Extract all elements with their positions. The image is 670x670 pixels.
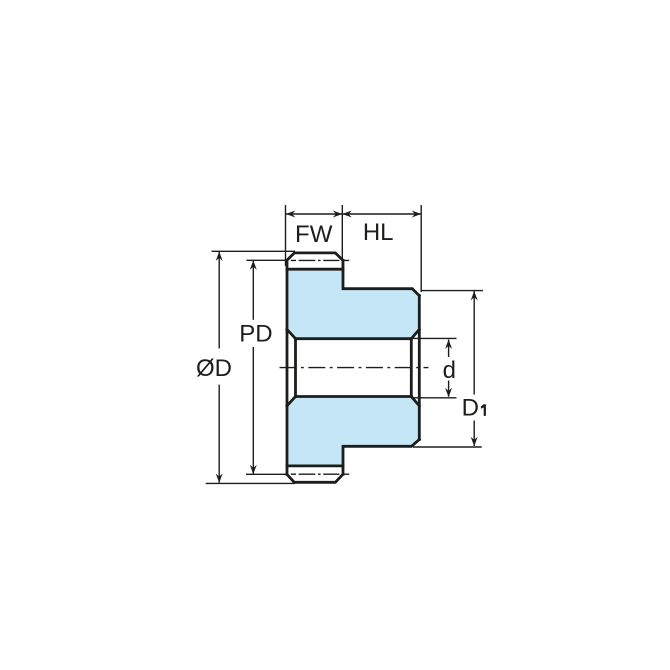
svg-text:d: d bbox=[443, 357, 456, 384]
svg-text:FW: FW bbox=[295, 221, 333, 248]
svg-text:ØD: ØD bbox=[196, 355, 232, 382]
svg-text:PD: PD bbox=[239, 321, 272, 348]
svg-text:HL: HL bbox=[363, 219, 394, 246]
svg-text:D: D bbox=[462, 395, 479, 422]
